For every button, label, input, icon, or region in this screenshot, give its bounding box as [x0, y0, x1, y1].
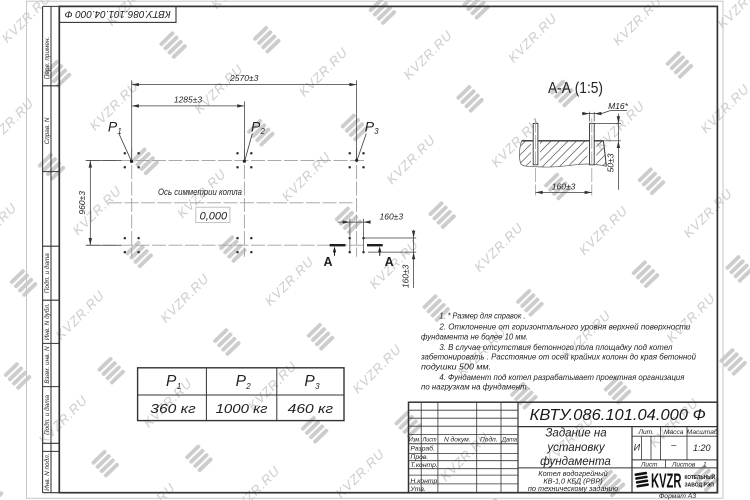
svg-text:по техническому заданию: по техническому заданию	[528, 484, 619, 493]
svg-text:КВТУ.086.101.04.000 Ф: КВТУ.086.101.04.000 Ф	[65, 8, 171, 19]
svg-text:2570±3: 2570±3	[229, 73, 259, 83]
svg-text:Т.контр.: Т.контр.	[410, 462, 438, 469]
svg-text:Разраб.: Разраб.	[410, 445, 435, 453]
svg-text:1. * Размер для справок .: 1. * Размер для справок .	[439, 311, 525, 321]
svg-text:Пров.: Пров.	[410, 454, 428, 461]
svg-text:по нагрузкам на фундамент .: по нагрузкам на фундамент .	[421, 381, 531, 391]
svg-text:460 кг: 460 кг	[288, 401, 334, 416]
svg-text:3: 3	[374, 127, 379, 136]
svg-text:1000 кг: 1000 кг	[216, 401, 269, 416]
svg-text:1: 1	[177, 382, 181, 391]
svg-text:установку: установку	[546, 442, 606, 454]
svg-text:Лист: Лист	[640, 461, 658, 468]
svg-text:1285±3: 1285±3	[174, 95, 203, 105]
svg-text:P: P	[251, 119, 261, 135]
svg-text:Задание на: Задание на	[545, 428, 606, 440]
svg-text:2: 2	[260, 127, 266, 136]
svg-text:Перв. примен.: Перв. примен.	[44, 37, 51, 79]
svg-text:Взам. инв. N: Взам. инв. N	[44, 346, 51, 384]
svg-text:Дата: Дата	[501, 437, 517, 444]
svg-text:Изм.: Изм.	[409, 437, 421, 444]
svg-text:Подп. и дата: Подп. и дата	[43, 253, 51, 293]
svg-text:Утв.: Утв.	[409, 486, 426, 493]
svg-text:КВТУ.086.101.04.000 Ф: КВТУ.086.101.04.000 Ф	[530, 407, 706, 424]
svg-text:Ось симметрии котла: Ось симметрии котла	[158, 187, 242, 197]
svg-text:0,000: 0,000	[200, 210, 228, 222]
svg-text:Н.контр.: Н.контр.	[410, 478, 439, 485]
svg-text:Формат А3: Формат А3	[659, 493, 696, 500]
svg-text:2: 2	[245, 382, 251, 391]
svg-text:И: И	[634, 443, 641, 453]
svg-text:забетонировать . Расстояние от: забетонировать . Расстояние от осей край…	[420, 352, 696, 362]
svg-text:Инв. N подл.: Инв. N подл.	[43, 454, 51, 491]
svg-text:Лист: Лист	[422, 437, 437, 444]
svg-text:А-А (1:5): А-А (1:5)	[548, 80, 603, 97]
svg-text:А: А	[385, 255, 394, 269]
svg-text:КОТЕЛЬНЫЙ: КОТЕЛЬНЫЙ	[685, 473, 716, 481]
svg-text:160±3: 160±3	[552, 181, 576, 191]
svg-text:3. В случае отсутствия бетонн: 3. В случае отсутствия бетонного пола пл…	[439, 342, 672, 352]
svg-text:Инв. N дубл.: Инв. N дубл.	[43, 303, 51, 340]
svg-text:P: P	[166, 373, 177, 390]
svg-text:Масштаб: Масштаб	[687, 428, 718, 436]
svg-text:160±3: 160±3	[380, 211, 404, 221]
svg-text:360 кг: 360 кг	[150, 401, 196, 416]
svg-text:1: 1	[703, 461, 707, 468]
svg-text:Подп.: Подп.	[480, 436, 498, 444]
svg-text:P: P	[365, 119, 375, 135]
svg-text:P: P	[108, 119, 118, 135]
svg-text:Справ. N: Справ. N	[44, 117, 51, 144]
svg-text:P: P	[236, 373, 247, 390]
svg-text:фундамента не более 10 мм.: фундамента не более 10 мм.	[421, 332, 528, 342]
svg-text:KVZR: KVZR	[651, 470, 682, 493]
svg-text:Подп. и дата: Подп. и дата	[43, 395, 51, 435]
svg-text:1:20: 1:20	[693, 443, 711, 453]
svg-text:подушки 500 мм.: подушки 500 мм.	[421, 361, 491, 371]
svg-text:ЗАВОД РЭП: ЗАВОД РЭП	[685, 482, 714, 488]
svg-text:Масса: Масса	[664, 429, 684, 436]
svg-text:фундамента: фундамента	[540, 456, 611, 468]
svg-text:3: 3	[315, 382, 320, 391]
svg-text:–: –	[670, 440, 677, 450]
svg-text:Лит.: Лит.	[637, 429, 654, 436]
svg-text:А: А	[323, 255, 332, 269]
svg-text:960±3: 960±3	[77, 191, 87, 215]
svg-text:М16*: М16*	[608, 101, 629, 111]
svg-text:P: P	[304, 373, 315, 390]
svg-text:160±3: 160±3	[401, 264, 411, 288]
svg-text:2. Отклонение от горизонтальн: 2. Отклонение от горизонтального уровня …	[438, 322, 690, 332]
svg-text:N докум.: N докум.	[444, 436, 471, 444]
svg-text:50±3: 50±3	[605, 153, 615, 172]
svg-text:Листов: Листов	[671, 461, 696, 468]
